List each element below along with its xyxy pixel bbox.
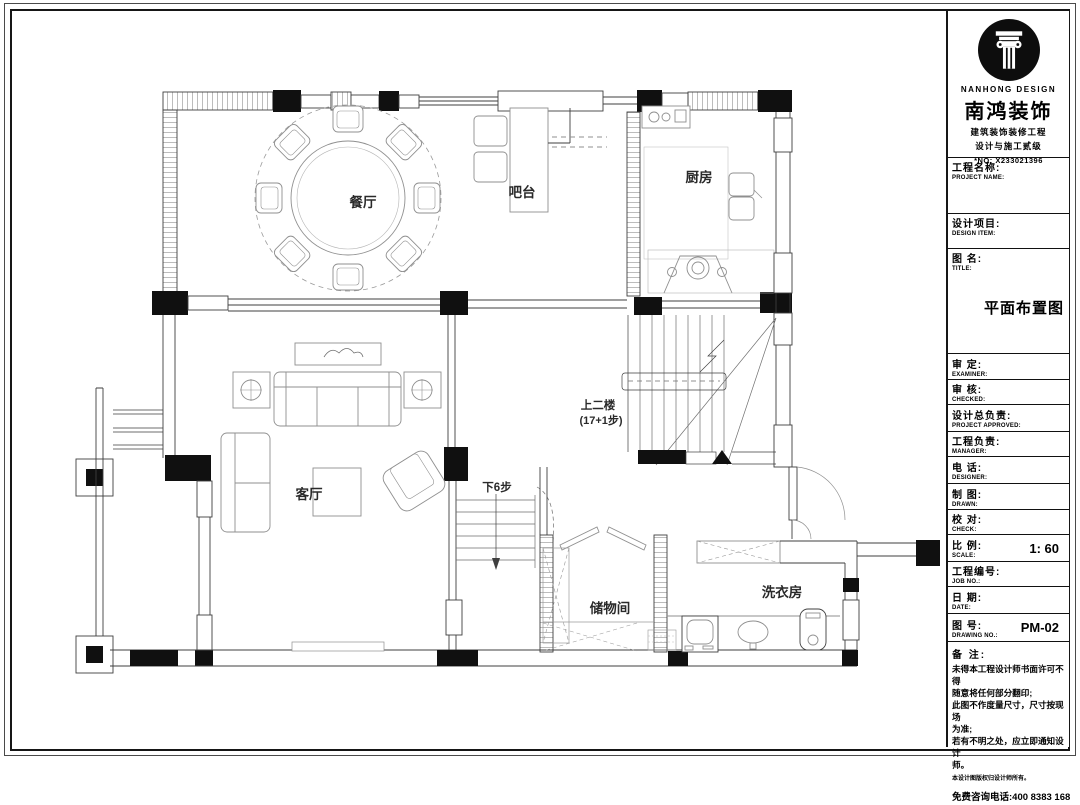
title-block: NANHONG DESIGN 南鸿装饰 建筑装饰装修工程 设计与施工贰级 *NO… [946, 11, 1069, 747]
copyright-note: 本设计图版权归设计师所有。 [952, 773, 1065, 782]
drawing-no-value: PM-02 [1021, 620, 1059, 635]
bar-area [474, 108, 607, 212]
field-scale: 比 例: SCALE: 1: 60 [948, 534, 1069, 561]
field-job-no: 工程编号: JOB NO.: [948, 561, 1069, 586]
laundry-door [792, 520, 811, 539]
label-kitchen: 厨房 [686, 169, 713, 185]
brand-name-en: NANHONG DESIGN [952, 85, 1065, 94]
field-designer-phone: 电 话: DESIGNER: [948, 456, 1069, 483]
field-manager: 工程负责: MANAGER: [948, 431, 1069, 456]
company-logo-block: NANHONG DESIGN 南鸿装饰 建筑装饰装修工程 设计与施工贰级 *NO… [948, 11, 1069, 157]
label-living: 客厅 [295, 486, 323, 502]
exterior-wall-right [774, 112, 845, 539]
field-checked: 审 核: CHECKED: [948, 379, 1069, 404]
exterior-wall-left [163, 110, 213, 666]
porch-columns [76, 388, 163, 673]
exterior-wall-top [163, 90, 792, 112]
field-drawing-no: 图 号: DRAWING NO.: PM-02 [948, 613, 1069, 641]
label-stairs-up-2: (17+1步) [579, 413, 622, 427]
sofa-two-seat [221, 433, 270, 532]
water-heater [800, 609, 826, 650]
interior-wall-middle [444, 315, 468, 650]
label-stairs-down: 下6步 [482, 480, 511, 494]
cert-line-1: 建筑装饰装修工程 [952, 126, 1065, 138]
side-table-lamp-left [233, 372, 270, 408]
label-laundry: 洗衣房 [762, 584, 803, 600]
field-drawn: 制 图: DRAWN: [948, 483, 1069, 509]
scale-value: 1: 60 [1029, 541, 1059, 556]
field-project-name: 工程名称: PROJECT NAME: [948, 157, 1069, 213]
field-check: 校 对: CHECK: [948, 509, 1069, 534]
label-stairs-up-1: 上二楼 [581, 398, 616, 412]
floor-plan-canvas: 餐厅 吧台 厨房 客厅 上二楼 (17+1步) 下6步 储物间 洗衣房 [0, 0, 1080, 760]
field-project-approved: 设计总负责: PROJECT APPROVED: [948, 404, 1069, 431]
sofa-three-seat [274, 372, 401, 426]
notes-block: 备 注: 未得本工程设计师书面许可不得 随意将任何部分翻印; 此图不作度量尺寸，… [948, 641, 1069, 805]
field-title: 图 名: TITLE: 平面布置图 [948, 248, 1069, 353]
field-design-item: 设计项目: DESIGN ITEM: [948, 213, 1069, 248]
label-dining: 餐厅 [349, 194, 377, 210]
storage-room [540, 467, 667, 652]
notes-label: 备 注: [952, 646, 1065, 661]
window-band-mid [152, 291, 792, 315]
drawing-sheet: 餐厅 吧台 厨房 客厅 上二楼 (17+1步) 下6步 储物间 洗衣房 [0, 0, 1080, 760]
field-examiner: 审 定: EXAMINER: [948, 353, 1069, 379]
label-storage: 储物间 [589, 600, 631, 616]
label-bar: 吧台 [509, 184, 536, 200]
down-steps [456, 487, 554, 570]
exterior-wall-bottom [110, 642, 858, 666]
column-logo-icon [978, 19, 1040, 81]
drawing-title: 平面布置图 [984, 297, 1064, 318]
hotline: 免费咨询电话:400 8383 168 [952, 789, 1065, 803]
entry-door [789, 467, 845, 520]
field-date: 日 期: DATE: [948, 586, 1069, 613]
cert-line-2: 设计与施工贰级 [952, 140, 1065, 152]
living-room [221, 343, 448, 532]
laundry-sink [738, 621, 768, 649]
washing-machine [682, 616, 718, 652]
armchair [380, 448, 448, 515]
stove [648, 250, 774, 293]
kitchen-area [627, 106, 774, 296]
side-table-lamp-right [404, 372, 441, 408]
brand-name-zh: 南鸿装饰 [952, 95, 1065, 124]
dining-area [255, 105, 441, 291]
main-staircase [622, 315, 776, 465]
